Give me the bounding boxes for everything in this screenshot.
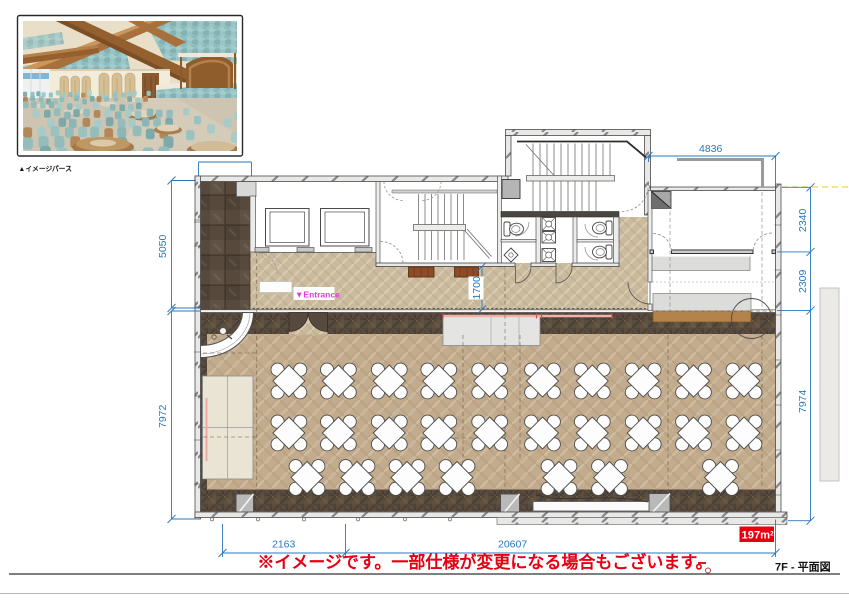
svg-text:197m2: 197m2 xyxy=(742,530,775,542)
svg-text:5050: 5050 xyxy=(157,234,169,258)
svg-text:7F - 平面図: 7F - 平面図 xyxy=(775,560,831,574)
svg-text:2163: 2163 xyxy=(272,539,296,551)
svg-text:7974: 7974 xyxy=(797,389,809,413)
svg-text:2340: 2340 xyxy=(797,208,809,232)
svg-text:1700: 1700 xyxy=(471,276,483,300)
svg-text:※イメージです。一部仕様が変更になる場合もございます。: ※イメージです。一部仕様が変更になる場合もございます。 xyxy=(257,552,712,572)
svg-text:4836: 4836 xyxy=(699,143,723,155)
svg-text:2309: 2309 xyxy=(797,269,809,293)
svg-text:▼Entrance: ▼Entrance xyxy=(295,290,340,300)
svg-text:▲イメージパース: ▲イメージパース xyxy=(19,164,73,173)
svg-text:7972: 7972 xyxy=(157,404,169,428)
svg-text:20607: 20607 xyxy=(498,539,527,551)
